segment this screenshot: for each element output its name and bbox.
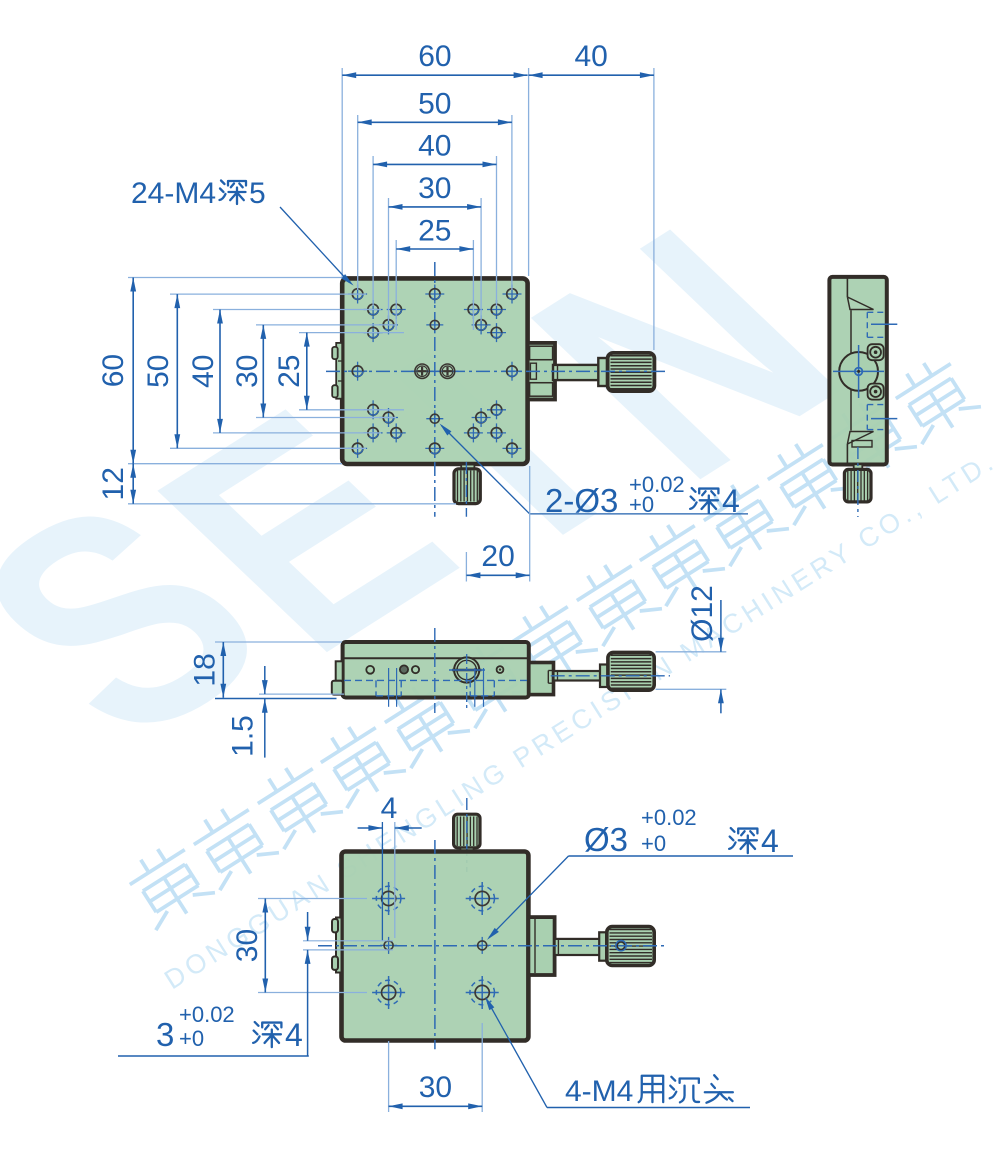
svg-text:Ø12: Ø12 — [686, 585, 719, 642]
svg-text:4: 4 — [761, 823, 779, 859]
svg-text:50: 50 — [418, 88, 451, 121]
svg-text:4: 4 — [722, 483, 740, 519]
svg-text:4: 4 — [285, 1017, 303, 1053]
svg-text:30: 30 — [419, 1071, 452, 1104]
svg-text:+0.02: +0.02 — [179, 1002, 235, 1027]
svg-text:25: 25 — [418, 215, 451, 248]
svg-text:1.5: 1.5 — [227, 715, 260, 757]
svg-text:60: 60 — [418, 40, 451, 73]
svg-text:+0.02: +0.02 — [641, 805, 697, 830]
svg-text:12: 12 — [97, 467, 130, 500]
svg-text:25: 25 — [273, 355, 306, 388]
svg-text:30: 30 — [418, 172, 451, 205]
svg-text:40: 40 — [418, 130, 451, 163]
svg-text:5: 5 — [249, 177, 266, 210]
svg-text:+0: +0 — [641, 831, 666, 856]
svg-text:4: 4 — [381, 792, 398, 825]
svg-text:+0: +0 — [629, 492, 654, 517]
svg-text:4-M4: 4-M4 — [565, 1075, 633, 1108]
svg-text:Ø3: Ø3 — [584, 821, 628, 858]
svg-text:24-M4: 24-M4 — [131, 177, 216, 210]
svg-text:30: 30 — [231, 929, 264, 962]
svg-text:2-Ø3: 2-Ø3 — [545, 482, 618, 519]
svg-text:18: 18 — [189, 653, 222, 686]
svg-text:20: 20 — [481, 540, 514, 573]
svg-text:40: 40 — [187, 355, 220, 388]
svg-text:+0: +0 — [179, 1026, 204, 1051]
svg-text:3: 3 — [156, 1016, 174, 1053]
svg-text:60: 60 — [97, 354, 130, 387]
svg-text:50: 50 — [142, 355, 175, 388]
svg-text:30: 30 — [231, 355, 264, 388]
svg-text:40: 40 — [575, 40, 608, 73]
